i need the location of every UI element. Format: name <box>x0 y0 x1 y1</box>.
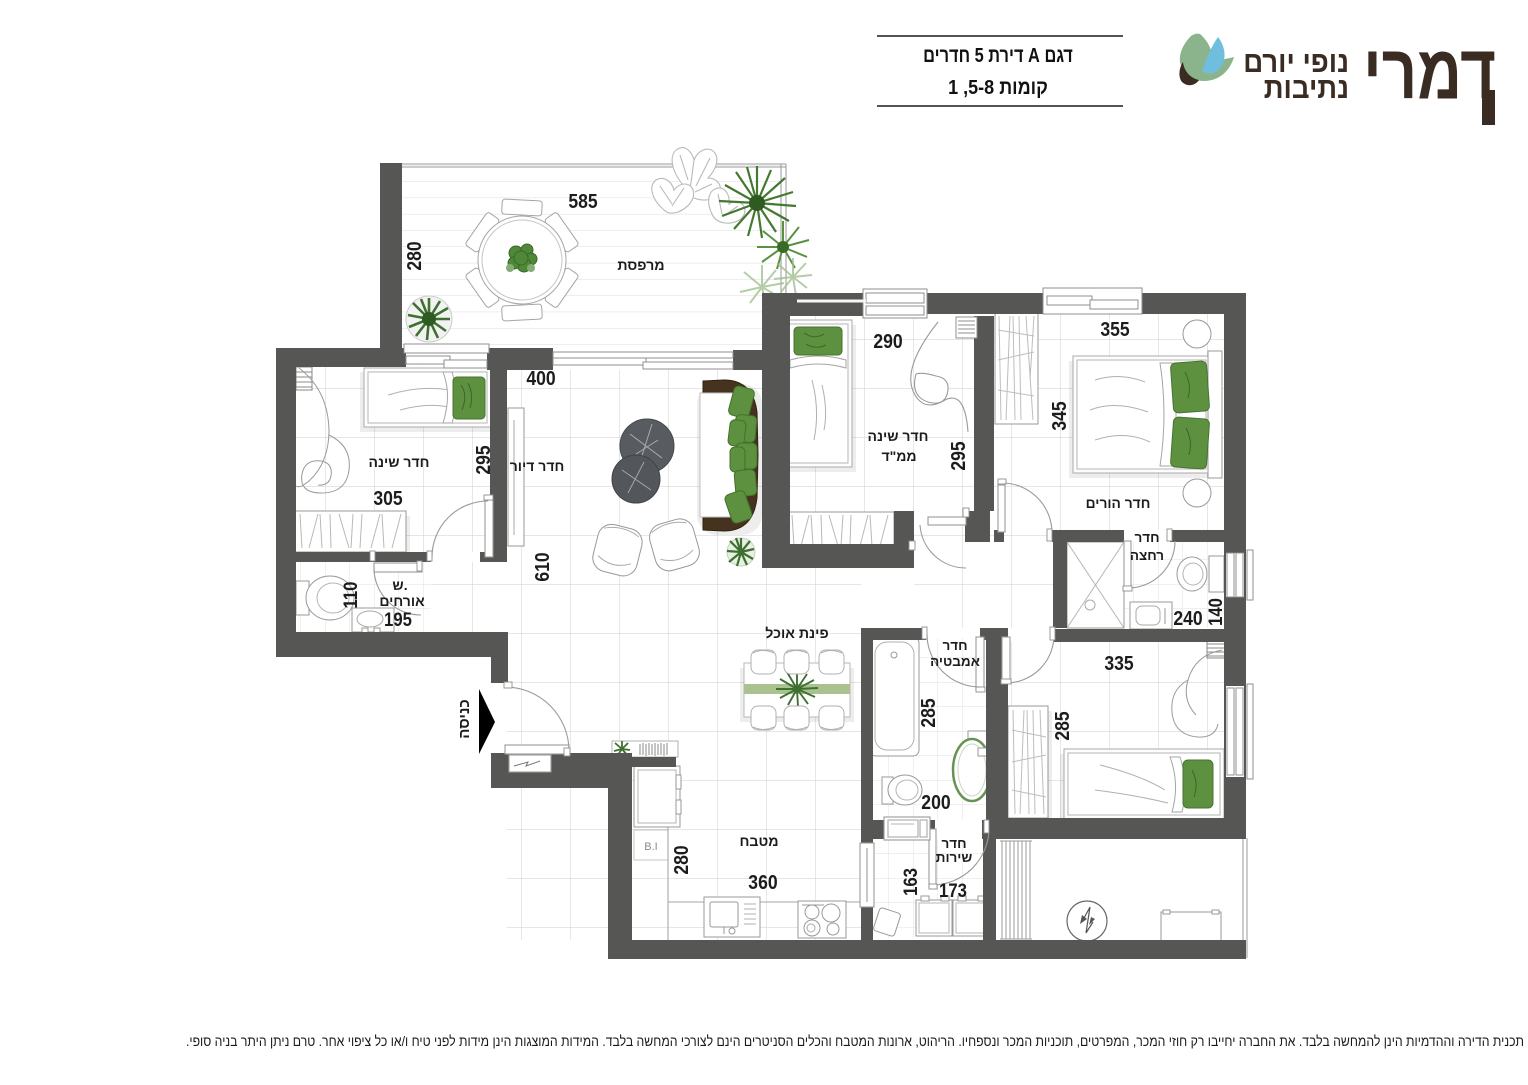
svg-text:240: 240 <box>1173 607 1202 629</box>
svg-text:280: 280 <box>670 845 692 874</box>
svg-text:כניסה: כניסה <box>456 699 473 738</box>
svg-text:חדר הורים: חדר הורים <box>1086 496 1151 511</box>
svg-text:מרפסת: מרפסת <box>617 258 664 274</box>
svg-text:אמבטיה: אמבטיה <box>930 654 980 669</box>
svg-text:חדר שינה: חדר שינה <box>369 454 430 470</box>
svg-text:חדר דיור: חדר דיור <box>510 458 565 474</box>
svg-text:מטבח: מטבח <box>739 834 778 850</box>
svg-text:דגם A דירת 5 חדרים: דגם A דירת 5 חדרים <box>923 43 1073 66</box>
svg-text:חדר: חדר <box>941 836 966 851</box>
svg-text:290: 290 <box>873 330 902 352</box>
svg-text:305: 305 <box>373 487 402 509</box>
svg-text:295: 295 <box>472 445 494 474</box>
svg-text:280: 280 <box>403 241 425 270</box>
svg-text:345: 345 <box>1048 401 1070 430</box>
svg-text:163: 163 <box>900 868 921 896</box>
svg-text:285: 285 <box>1051 711 1073 740</box>
svg-text:610: 610 <box>531 552 553 581</box>
svg-text:חדר: חדר <box>942 638 967 653</box>
svg-text:רחצה: רחצה <box>1130 548 1164 563</box>
svg-text:B.I: B.I <box>644 841 657 853</box>
svg-text:נתיבות: נתיבות <box>1264 72 1349 105</box>
svg-text:140: 140 <box>1205 598 1226 626</box>
svg-text:פינת אוכל: פינת אוכל <box>765 626 828 642</box>
svg-text:355: 355 <box>1100 318 1129 340</box>
svg-text:285: 285 <box>917 698 939 727</box>
svg-text:173: 173 <box>939 880 967 901</box>
svg-text:200: 200 <box>921 791 950 813</box>
svg-text:195: 195 <box>384 609 412 630</box>
svg-text:360: 360 <box>748 871 777 893</box>
svg-text:קומות 5-8, 1: קומות 5-8, 1 <box>948 77 1048 99</box>
svg-text:295: 295 <box>947 441 969 470</box>
svg-text:דמרי: דמרי <box>1363 28 1496 114</box>
svg-text:ממ"ד: ממ"ד <box>881 448 916 464</box>
svg-text:110: 110 <box>340 581 361 608</box>
svg-text:חדר שינה: חדר שינה <box>868 428 929 444</box>
svg-text:335: 335 <box>1104 652 1133 674</box>
svg-text:585: 585 <box>568 190 597 212</box>
svg-text:תכנית הדירה וההדמיות הינן להמח: תכנית הדירה וההדמיות הינן להמחשה בלבד. א… <box>186 1033 1524 1049</box>
svg-text:ש.: ש. <box>392 577 407 593</box>
svg-text:חדר: חדר <box>1134 530 1159 545</box>
svg-text:400: 400 <box>526 367 555 389</box>
svg-text:אורחים: אורחים <box>379 593 425 609</box>
svg-text:שירות: שירות <box>936 850 973 865</box>
